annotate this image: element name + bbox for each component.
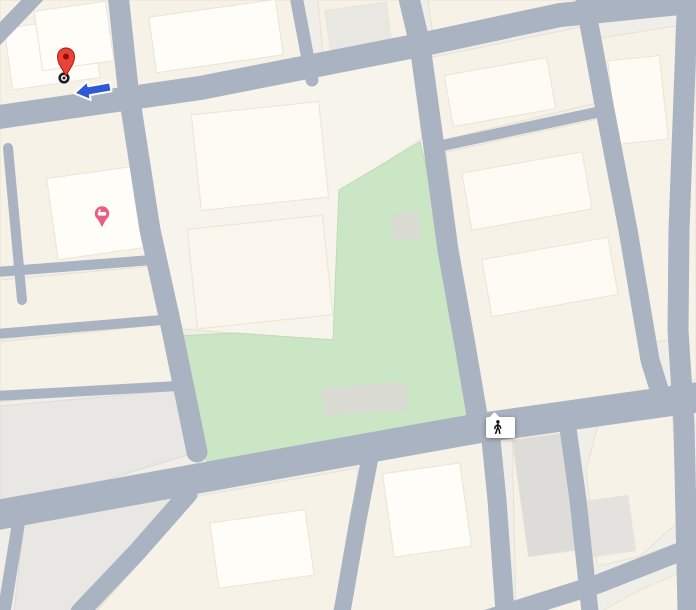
walking-icon: [492, 420, 503, 434]
walk-time-badge[interactable]: [486, 417, 515, 438]
map-svg: [0, 0, 696, 610]
map-canvas[interactable]: [0, 0, 696, 610]
